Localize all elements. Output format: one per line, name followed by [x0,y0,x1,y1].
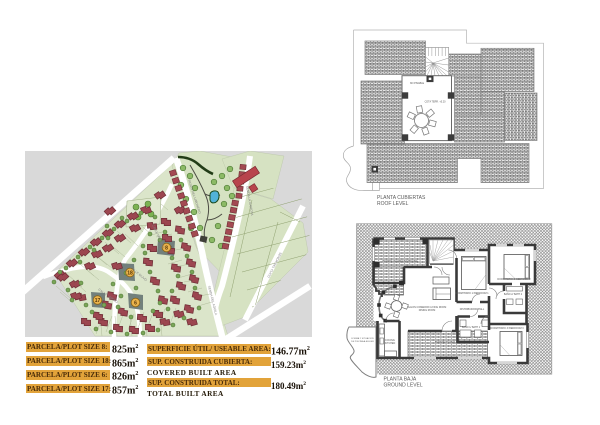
svg-text:BAÑO 1/ BATH 1: BAÑO 1/ BATH 1 [462,326,481,329]
svg-text:GROUND LEVEL: GROUND LEVEL [384,383,423,389]
svg-text:PORCHE ACCESO/ ENTRANCE: PORCHE ACCESO/ ENTRANCE [382,260,418,263]
svg-text:6: 6 [134,300,137,306]
svg-text:DORMITORIO 1/ BEDROOM 1: DORMITORIO 1/ BEDROOM 1 [455,292,489,295]
svg-text:NO PISABLE: NO PISABLE [410,82,425,85]
svg-text:FORMA Y SITUACION: FORMA Y SITUACION [351,337,374,340]
svg-text:PORCHE/ PORCH: PORCHE/ PORCH [435,341,455,344]
svg-text:DISTRIBUIDOR/ HALL: DISTRIBUIDOR/ HALL [460,308,485,311]
svg-text:DINING ROOM: DINING ROOM [419,309,435,312]
svg-text:COTA TERR. +5.20: COTA TERR. +5.20 [425,101,447,104]
svg-text:17: 17 [95,298,101,304]
svg-text:DORMITORIO 2/ BEDROOM 2: DORMITORIO 2/ BEDROOM 2 [497,278,531,281]
svg-text:BAÑO 2/ BATH 2: BAÑO 2/ BATH 2 [504,293,523,296]
svg-text:DE PISCINA A ELEGIR: DE PISCINA A ELEGIR [351,340,374,343]
svg-text:DORMITORIO 3/ BEDROOM 3: DORMITORIO 3/ BEDROOM 3 [490,327,524,330]
svg-text:ROOF LEVEL: ROOF LEVEL [377,201,409,207]
svg-text:KITCHEN: KITCHEN [385,342,396,345]
svg-text:18: 18 [127,270,133,276]
